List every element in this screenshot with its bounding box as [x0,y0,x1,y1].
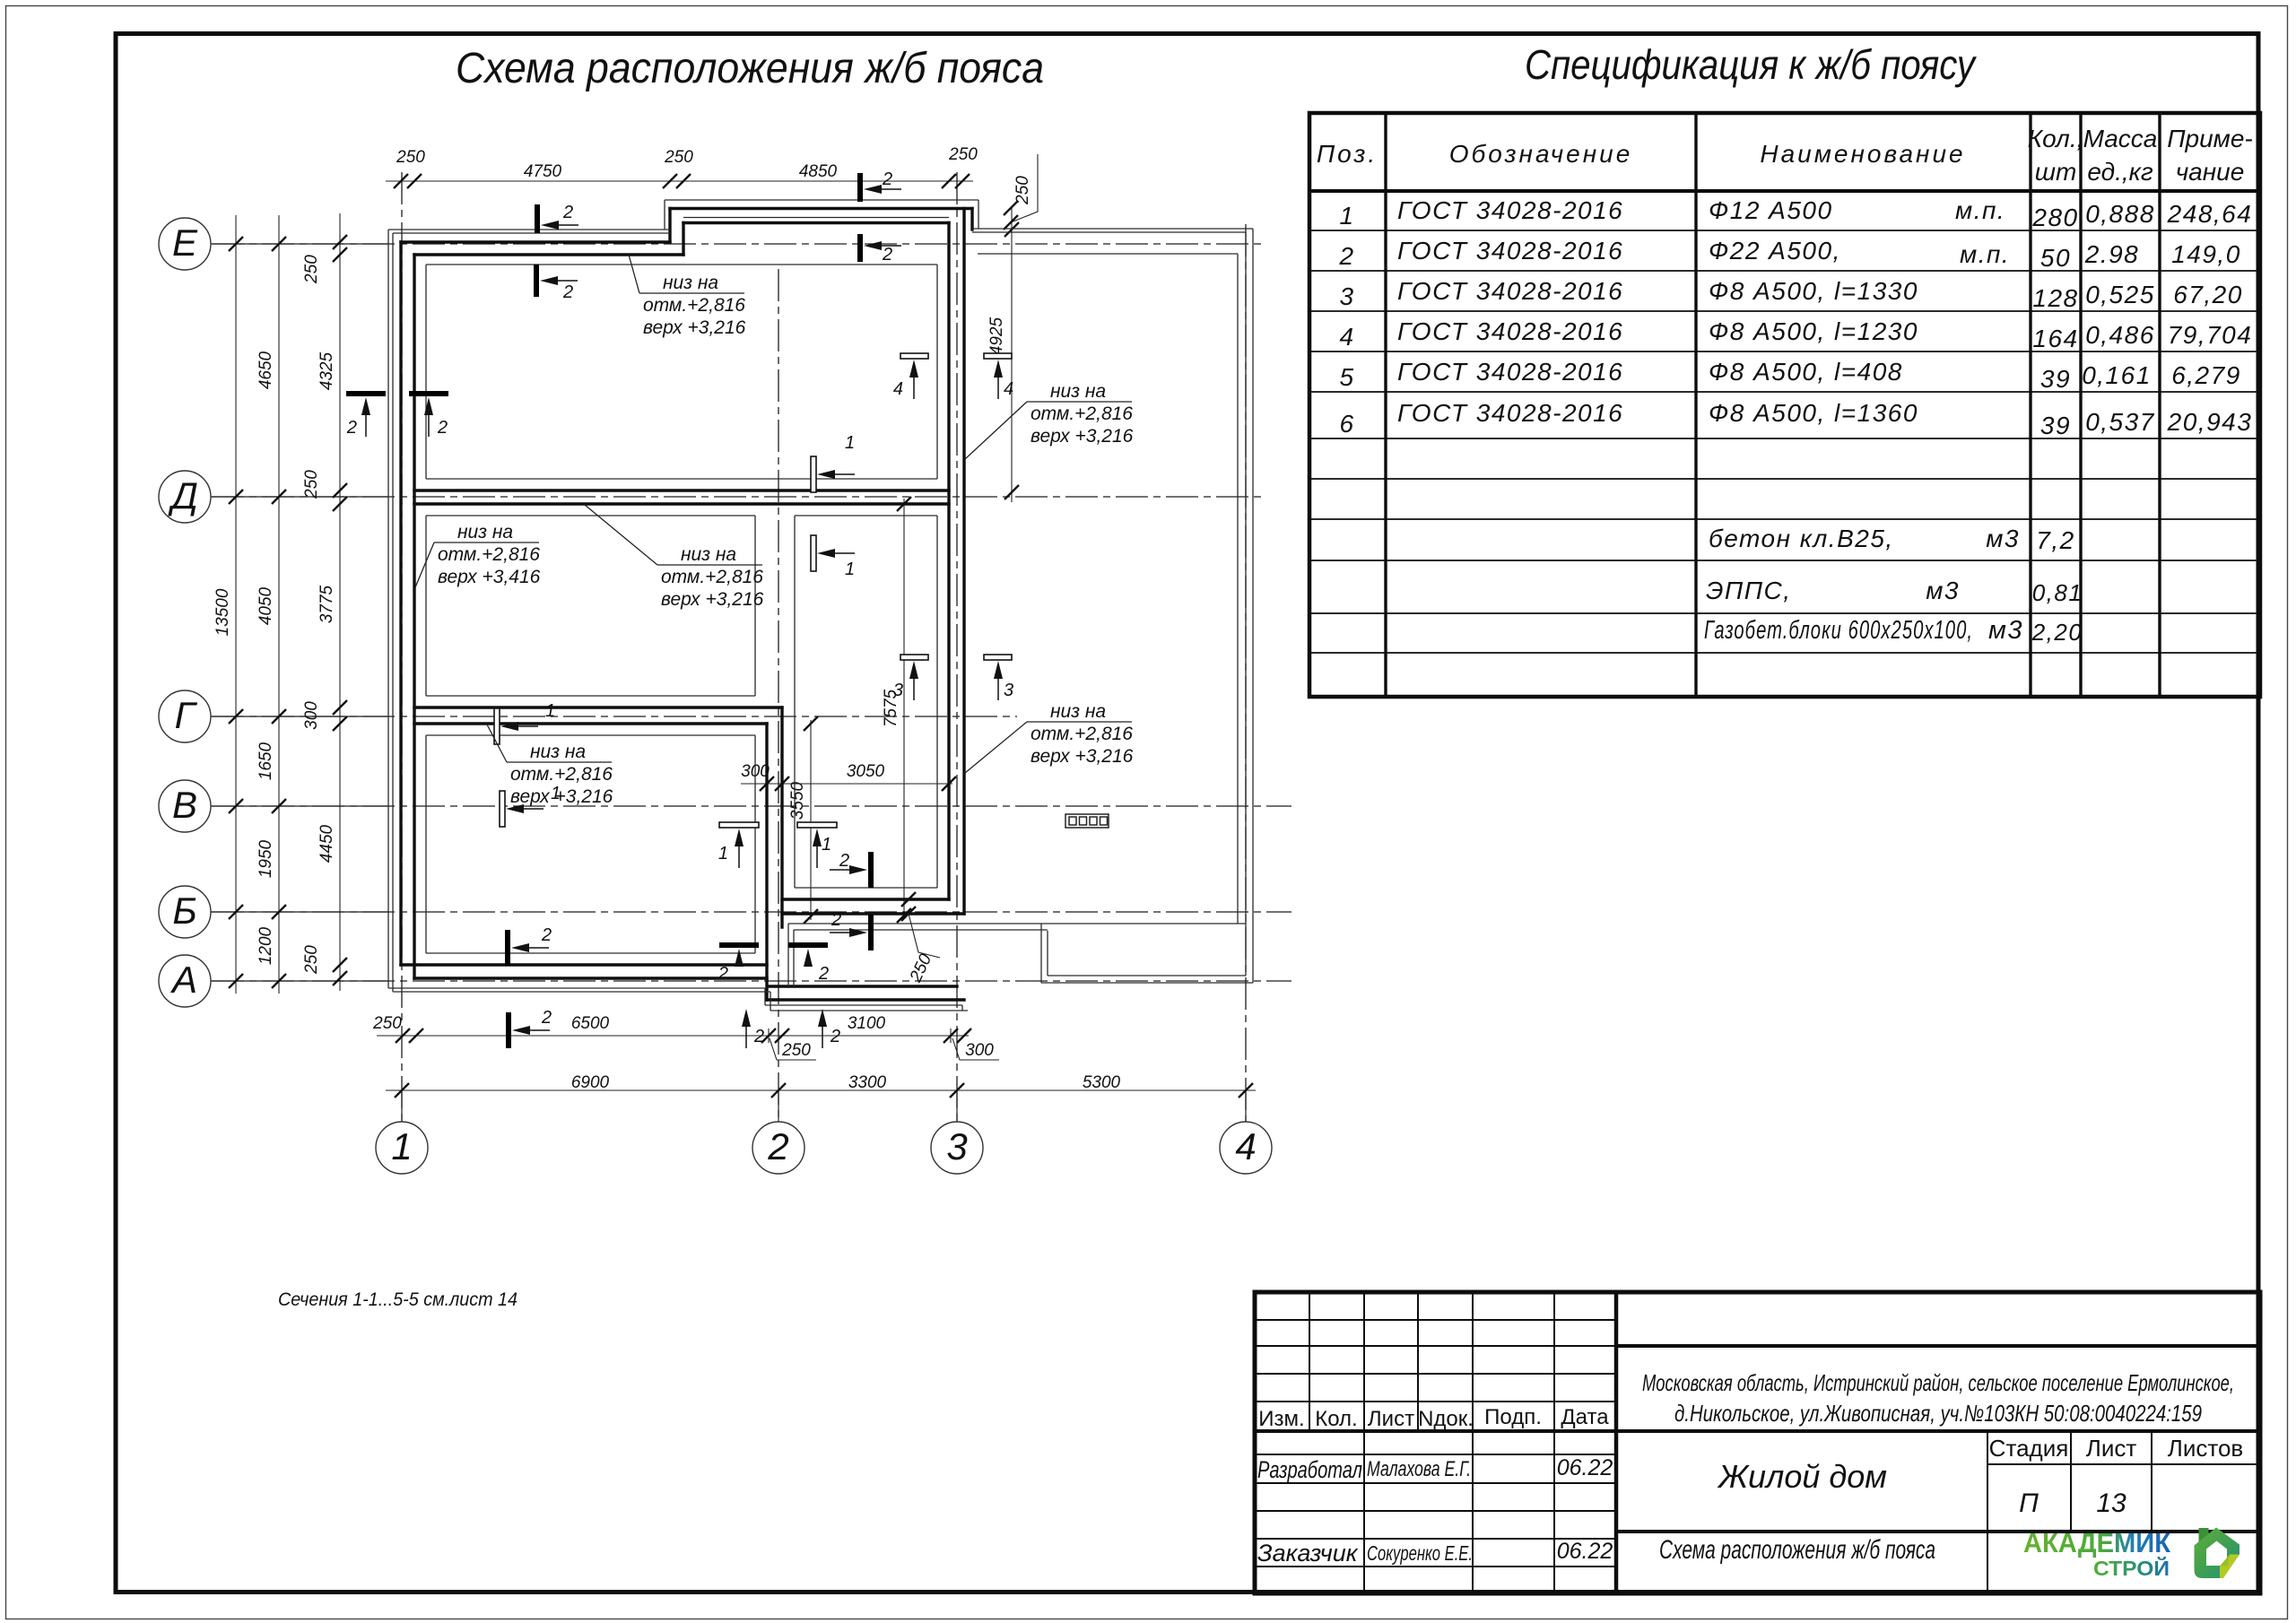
svg-text:0,888: 0,888 [2085,200,2155,228]
svg-text:1200: 1200 [257,926,275,965]
svg-text:0,81: 0,81 [2032,579,2083,606]
svg-text:6: 6 [1339,410,1354,438]
svg-text:ГОСТ 34028-2016: ГОСТ 34028-2016 [1397,277,1623,305]
svg-text:Б: Б [172,890,196,932]
svg-text:чание: чание [2176,158,2245,186]
svg-text:250: 250 [302,470,321,499]
svg-text:Изм.: Изм. [1258,1407,1304,1431]
svg-text:верх +3,216: верх +3,216 [643,317,746,338]
svg-text:2: 2 [346,418,357,438]
svg-text:2: 2 [767,1125,788,1167]
svg-text:2: 2 [818,964,829,984]
svg-text:шт: шт [2035,158,2077,186]
svg-text:7,2: 7,2 [2036,526,2074,554]
svg-text:4325: 4325 [317,352,336,390]
svg-text:250: 250 [302,255,321,284]
svg-text:2: 2 [753,1027,764,1046]
svg-text:1650: 1650 [257,742,275,780]
svg-text:Схема расположения ж/б пояса: Схема расположения ж/б пояса [1659,1535,1935,1565]
svg-text:м.п.: м.п. [1960,240,2010,268]
svg-text:отм.+2,816: отм.+2,816 [1031,404,1133,424]
svg-text:2: 2 [830,1027,840,1046]
svg-text:79,704: 79,704 [2168,321,2253,349]
svg-text:1950: 1950 [257,839,275,878]
svg-text:6900: 6900 [571,1073,610,1092]
svg-text:Ф22 А500,: Ф22 А500, [1709,237,1841,265]
svg-text:Малахова Е.Г.: Малахова Е.Г. [1367,1457,1471,1481]
svg-text:280: 280 [2031,204,2078,231]
svg-text:Сокуренко Е.Е.: Сокуренко Е.Е. [1367,1541,1473,1565]
svg-text:39: 39 [2040,412,2071,439]
svg-text:2: 2 [717,964,728,984]
svg-text:отм.+2,816: отм.+2,816 [661,567,763,587]
svg-text:Разработал: Разработал [1257,1456,1362,1483]
svg-text:06.22: 06.22 [1557,1539,1613,1564]
svg-text:250: 250 [948,145,978,164]
svg-text:Ф12 А500: Ф12 А500 [1709,196,1833,224]
svg-text:низ на: низ на [1050,381,1106,402]
svg-text:Спецификация к ж/б поясу: Спецификация к ж/б поясу [1525,41,1978,88]
svg-text:3100: 3100 [848,1014,886,1033]
svg-text:Сечения 1-1...5-5 см.лист 14: Сечения 1-1...5-5 см.лист 14 [278,1289,517,1310]
svg-text:250: 250 [372,1014,402,1033]
svg-text:Ф8 А500, l=1360: Ф8 А500, l=1360 [1709,399,1918,427]
svg-text:4750: 4750 [524,162,562,181]
svg-text:13: 13 [2096,1488,2126,1518]
svg-text:Кол.: Кол. [1315,1407,1357,1431]
svg-text:4: 4 [893,379,903,399]
svg-text:3: 3 [893,681,903,700]
svg-text:ГОСТ 34028-2016: ГОСТ 34028-2016 [1397,196,1623,224]
svg-text:1: 1 [1339,202,1354,230]
svg-text:Жилой дом: Жилой дом [1717,1458,1887,1495]
svg-text:Московская область, Истринский: Московская область, Истринский район, се… [1642,1369,2234,1396]
svg-text:5300: 5300 [1083,1073,1121,1092]
svg-text:А: А [170,959,197,1001]
svg-text:АКАДЕМИК: АКАДЕМИК [2023,1527,2170,1558]
svg-text:4925: 4925 [987,317,1006,355]
svg-text:4: 4 [1339,323,1354,351]
svg-text:Обозначение: Обозначение [1449,140,1633,168]
svg-text:Подп.: Подп. [1484,1405,1542,1429]
svg-text:Стадия: Стадия [1989,1435,2069,1462]
svg-text:ГОСТ 34028-2016: ГОСТ 34028-2016 [1397,358,1623,386]
svg-text:ЭППС,: ЭППС, [1706,577,1792,604]
svg-text:1: 1 [822,835,831,855]
svg-text:4450: 4450 [317,824,336,863]
svg-text:39: 39 [2040,365,2071,393]
svg-text:0,486: 0,486 [2085,321,2155,349]
svg-text:бетон кл.В25,: бетон кл.В25, [1709,525,1894,552]
svg-text:ГОСТ 34028-2016: ГОСТ 34028-2016 [1397,399,1623,427]
svg-text:3050: 3050 [847,762,885,781]
svg-text:4: 4 [1235,1125,1256,1167]
svg-text:отм.+2,816: отм.+2,816 [510,764,613,785]
svg-text:2: 2 [882,169,892,189]
svg-text:2: 2 [562,282,573,302]
svg-text:3: 3 [1004,681,1013,700]
svg-text:ГОСТ 34028-2016: ГОСТ 34028-2016 [1397,237,1623,265]
svg-text:Листов: Листов [2168,1435,2243,1462]
svg-text:4850: 4850 [799,162,838,181]
svg-text:отм.+2,816: отм.+2,816 [1031,724,1133,744]
svg-text:128: 128 [2032,284,2078,312]
svg-text:4: 4 [1004,379,1013,399]
svg-text:отм.+2,816: отм.+2,816 [643,295,745,316]
svg-text:низ на: низ на [457,522,513,542]
svg-text:Г: Г [175,694,198,736]
svg-text:низ на: низ на [530,742,586,762]
svg-text:3: 3 [946,1125,967,1167]
svg-text:2: 2 [541,1008,552,1028]
svg-text:06.22: 06.22 [1557,1455,1613,1480]
svg-text:Газобет.блоки 600х250х100,: Газобет.блоки 600х250х100, [1704,616,1973,645]
svg-text:164: 164 [2032,325,2078,352]
svg-text:низ на: низ на [663,273,718,293]
svg-text:248,64: 248,64 [2167,200,2253,228]
svg-text:Приме-: Приме- [2167,125,2253,152]
svg-text:Кол.,: Кол., [2028,125,2084,152]
svg-text:6,279: 6,279 [2171,361,2241,389]
svg-text:2.98: 2.98 [2084,240,2140,268]
svg-text:1: 1 [391,1125,412,1167]
svg-text:20,943: 20,943 [2167,408,2253,436]
svg-text:Схема расположения ж/б пояса: Схема расположения ж/б пояса [456,45,1044,92]
svg-text:1: 1 [545,701,555,721]
svg-text:4050: 4050 [257,586,275,625]
svg-text:Заказчик: Заказчик [1257,1540,1359,1567]
svg-text:2: 2 [437,418,448,438]
svg-text:отм.+2,816: отм.+2,816 [438,544,540,565]
svg-text:Nдок.: Nдок. [1418,1407,1474,1431]
svg-text:В: В [172,784,197,826]
svg-text:низ на: низ на [1050,701,1106,722]
svg-text:1: 1 [718,844,728,864]
svg-text:ед.,кг: ед.,кг [2087,158,2153,186]
svg-text:1: 1 [845,433,855,453]
svg-text:1: 1 [845,560,855,579]
svg-text:м.п.: м.п. [1955,196,2005,224]
svg-text:д.Никольское, ул.Живописная, у: д.Никольское, ул.Живописная, уч.№103КН 5… [1674,1400,2202,1427]
svg-text:3775: 3775 [317,585,336,623]
svg-text:0,525: 0,525 [2085,281,2155,308]
svg-text:300: 300 [965,1041,994,1060]
svg-text:Ф8 А500, l=1230: Ф8 А500, l=1230 [1709,317,1918,345]
svg-text:Масса: Масса [2083,125,2158,152]
svg-text:3300: 3300 [848,1073,887,1092]
svg-text:верх +3,216: верх +3,216 [510,786,613,807]
svg-text:300: 300 [302,701,321,730]
svg-text:Дата: Дата [1561,1405,1609,1429]
svg-text:м3: м3 [1926,577,1960,604]
svg-text:3: 3 [1339,282,1354,310]
svg-text:5: 5 [1339,363,1354,391]
svg-text:2,20: 2,20 [2031,619,2083,646]
svg-text:верх +3,216: верх +3,216 [1031,426,1134,447]
svg-text:Лист: Лист [2086,1435,2137,1462]
svg-text:250: 250 [1013,176,1032,205]
svg-text:250: 250 [781,1041,811,1060]
svg-text:м3: м3 [1988,616,2023,645]
svg-text:ГОСТ 34028-2016: ГОСТ 34028-2016 [1397,317,1623,345]
svg-text:250: 250 [396,148,425,167]
svg-text:2: 2 [831,910,841,930]
svg-text:250: 250 [664,148,693,167]
svg-text:Ф8 А500, l=1330: Ф8 А500, l=1330 [1709,277,1918,305]
svg-text:верх +3,216: верх +3,216 [661,589,764,610]
svg-text:Ф8 А500, l=408: Ф8 А500, l=408 [1709,358,1903,386]
svg-text:Лист: Лист [1368,1407,1414,1431]
svg-text:2: 2 [839,851,849,871]
svg-text:Д: Д [168,474,198,516]
svg-text:СТРОЙ: СТРОЙ [2093,1556,2170,1580]
svg-text:2: 2 [562,203,573,222]
svg-text:2: 2 [882,245,892,265]
svg-text:3550: 3550 [788,781,807,820]
svg-text:Е: Е [172,221,198,264]
svg-text:0,537: 0,537 [2085,408,2155,436]
svg-text:П: П [2019,1488,2039,1518]
svg-text:Наименование: Наименование [1760,140,1965,168]
svg-text:149,0: 149,0 [2171,240,2241,268]
svg-text:м3: м3 [1986,525,2020,552]
svg-text:250: 250 [302,945,321,975]
svg-text:6500: 6500 [571,1014,610,1033]
svg-text:67,20: 67,20 [2173,281,2243,308]
svg-text:Поз.: Поз. [1317,140,1378,168]
svg-text:2: 2 [1338,242,1354,270]
svg-text:низ на: низ на [681,544,736,565]
svg-text:13500: 13500 [213,588,232,636]
svg-text:верх +3,216: верх +3,216 [1031,746,1134,767]
svg-text:4650: 4650 [257,351,275,389]
svg-text:0,161: 0,161 [2082,361,2152,389]
svg-text:2: 2 [541,925,552,945]
svg-text:верх +3,416: верх +3,416 [438,567,541,587]
svg-text:50: 50 [2040,244,2071,272]
